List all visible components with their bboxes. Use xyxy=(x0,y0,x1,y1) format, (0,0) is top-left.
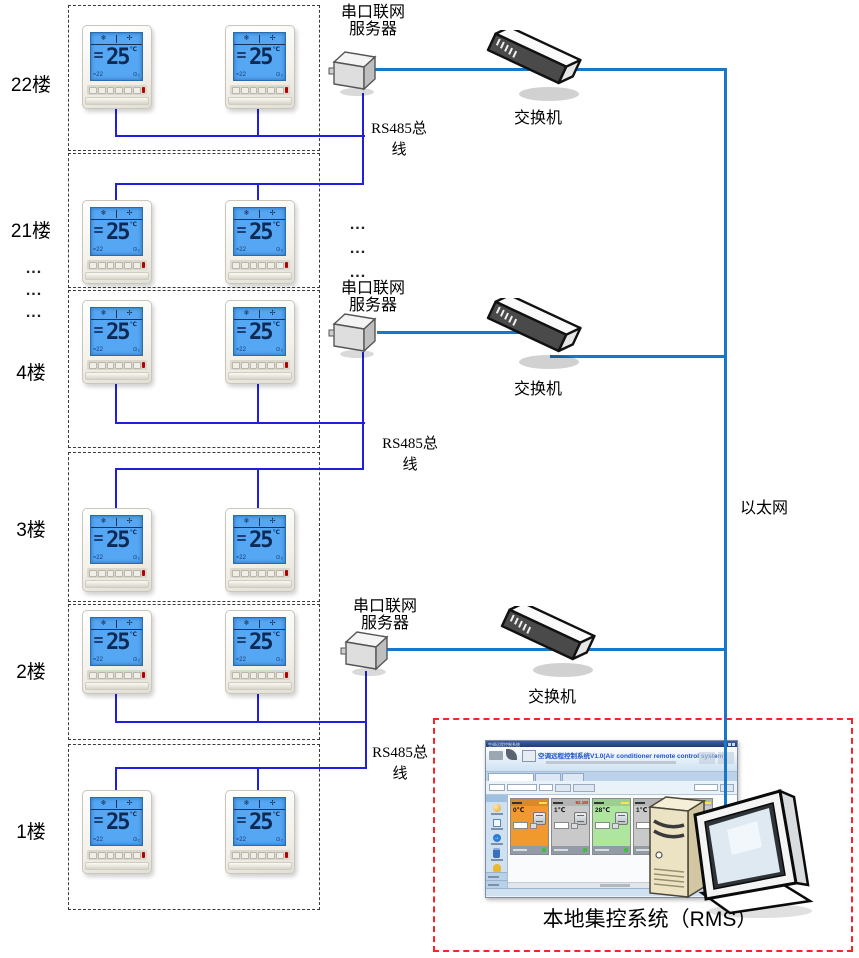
thermostat: ❄ ✢ 25 ℃ ≈22 ⊙₂ xyxy=(225,610,295,694)
thermostat-lcd: ❄ ✢ 25 ℃ ≈22 ⊙₂ xyxy=(90,32,143,81)
switch-label: 交换机 xyxy=(517,683,587,707)
rs485-bus-line xyxy=(115,382,117,422)
thermostat: ❄ ✢ 25 ℃ ≈22 ⊙₂ xyxy=(225,25,295,109)
rs485-bus-line xyxy=(365,671,367,769)
card-title-bar xyxy=(553,802,563,804)
arrow-icon: → xyxy=(493,834,501,842)
ac-unit-card: 0℃ xyxy=(510,798,549,855)
lcd-status-left: ≈22 xyxy=(93,657,103,664)
rs485-bus-line xyxy=(115,721,367,723)
lcd-status-left: ≈22 xyxy=(236,347,246,354)
lcd-status-left: ≈22 xyxy=(236,555,246,562)
network-switch-icon xyxy=(483,298,583,378)
thermostat-lcd: ❄ ✢ 25 ℃ ≈22 ⊙₂ xyxy=(90,515,143,564)
rs485-bus-line xyxy=(115,692,117,721)
snowflake-icon: ❄ xyxy=(91,799,116,809)
mode-indicator xyxy=(237,533,246,543)
lcd-status-right: ⊙₂ xyxy=(133,555,140,562)
thermostat-buttons xyxy=(87,260,147,270)
lcd-status-right: ⊙₂ xyxy=(133,247,140,254)
fan-icon: ✢ xyxy=(260,34,285,44)
snowflake-icon: ❄ xyxy=(91,34,116,44)
more-floors-dots: ... xyxy=(14,262,54,276)
user-icon xyxy=(493,864,501,872)
temperature-unit: ℃ xyxy=(273,529,280,536)
temperature-readout: 25 xyxy=(106,320,129,346)
fan-icon: ✢ xyxy=(260,619,285,629)
window-title-text: 空调远程控制系统 xyxy=(488,742,520,747)
lcd-status-right: ⊙₂ xyxy=(133,347,140,354)
thermostat-lcd: ❄ ✢ 25 ℃ ≈22 ⊙₂ xyxy=(90,207,143,256)
temperature-unit: ℃ xyxy=(130,321,137,328)
temperature-unit: ℃ xyxy=(130,631,137,638)
lcd-status-right: ⊙₂ xyxy=(133,837,140,844)
led-indicator xyxy=(142,570,145,576)
network-switch-icon xyxy=(483,30,583,110)
ac-unit-card: 28℃ xyxy=(592,798,631,855)
fan-icon: ✢ xyxy=(260,209,285,219)
thermostat-base xyxy=(85,372,149,380)
temperature-readout: 25 xyxy=(106,810,129,836)
app-tab xyxy=(488,773,534,781)
lcd-status-left: ≈22 xyxy=(93,72,103,79)
mode-indicator xyxy=(237,325,246,335)
mode-indicator xyxy=(237,225,246,235)
temperature-readout: 25 xyxy=(106,528,129,554)
floor-label-2: 2楼 xyxy=(2,657,60,684)
led-indicator xyxy=(285,852,288,858)
lcd-status-left: ≈22 xyxy=(93,555,103,562)
more-servers-dots: ... xyxy=(338,218,378,232)
snowflake-icon: ❄ xyxy=(91,619,116,629)
thermostat-base xyxy=(228,682,292,690)
thermostat-lcd: ❄ ✢ 25 ℃ ≈22 ⊙₂ xyxy=(90,307,143,356)
mode-indicator xyxy=(94,50,103,60)
app-title: 空调远程控制系统V1.0(Air conditioner remote cont… xyxy=(538,750,725,760)
thermostat: ❄ ✢ 25 ℃ ≈22 ⊙₂ xyxy=(82,300,152,384)
thermostat-base xyxy=(85,580,149,588)
lcd-status-left: ≈22 xyxy=(236,247,246,254)
mode-indicator xyxy=(94,533,103,543)
temperature-readout: 25 xyxy=(106,630,129,656)
thermostat-base xyxy=(228,272,292,280)
thermostat-base xyxy=(228,862,292,870)
mode-indicator xyxy=(237,635,246,645)
floor-label-21: 21楼 xyxy=(2,216,60,243)
card-temperature: 1℃ xyxy=(554,807,566,814)
more-floors-dots: ... xyxy=(14,306,54,320)
rs485-bus-label: RS485总线 xyxy=(369,743,431,785)
lcd-status-right: ⊙₂ xyxy=(276,555,283,562)
monitor-logo-icon xyxy=(489,751,503,760)
card-status-strip xyxy=(552,846,589,854)
led-indicator xyxy=(285,87,288,93)
thermostat-buttons xyxy=(87,568,147,578)
rs485-bus-line xyxy=(115,107,117,135)
thermostat-base xyxy=(228,372,292,380)
thermostat-buttons xyxy=(230,850,290,860)
temperature-unit: ℃ xyxy=(273,221,280,228)
serial-server-icon xyxy=(326,46,380,98)
thermostat-lcd: ❄ ✢ 25 ℃ ≈22 ⊙₂ xyxy=(233,32,286,81)
monitor-search-icon xyxy=(493,819,501,827)
ethernet-label: 以太网 xyxy=(740,494,788,518)
thermostat-lcd: ❄ ✢ 25 ℃ ≈22 ⊙₂ xyxy=(90,797,143,846)
thermostat-lcd: ❄ ✢ 25 ℃ ≈22 ⊙₂ xyxy=(233,207,286,256)
serial-server-label: 串口联网服务器 xyxy=(330,598,440,632)
ac-unit-card: 92.1M 1℃ xyxy=(551,798,590,855)
card-mini-button xyxy=(571,823,578,829)
lcd-status-right: ⊙₂ xyxy=(133,657,140,664)
lcd-status-right: ⊙₂ xyxy=(276,657,283,664)
switch-label: 交换机 xyxy=(503,104,573,128)
thermostat-buttons xyxy=(87,85,147,95)
thermostat: ❄ ✢ 25 ℃ ≈22 ⊙₂ xyxy=(82,508,152,592)
switch-label: 交换机 xyxy=(503,375,573,399)
temperature-unit: ℃ xyxy=(273,321,280,328)
snowflake-icon: ❄ xyxy=(234,34,259,44)
floor-label-22: 22楼 xyxy=(2,70,60,97)
thermostat-buttons xyxy=(230,670,290,680)
card-mini-button xyxy=(530,823,537,829)
temperature-unit: ℃ xyxy=(130,221,137,228)
fan-icon: ✢ xyxy=(117,517,142,527)
snowflake-icon: ❄ xyxy=(234,799,259,809)
card-temperature: 0℃ xyxy=(513,807,525,814)
header-decoration xyxy=(699,752,715,764)
card-mini-button xyxy=(612,823,619,829)
serial-server-label: 串口联网服务器 xyxy=(318,280,428,314)
lcd-status-left: ≈22 xyxy=(93,837,103,844)
lcd-status-left: ≈22 xyxy=(236,837,246,844)
network-switch-icon xyxy=(497,606,597,686)
fan-icon: ✢ xyxy=(260,517,285,527)
snowflake-icon: ❄ xyxy=(91,517,116,527)
lcd-status-left: ≈22 xyxy=(93,247,103,254)
temperature-unit: ℃ xyxy=(130,529,137,536)
temperature-unit: ℃ xyxy=(130,811,137,818)
thermostat: ❄ ✢ 25 ℃ ≈22 ⊙₂ xyxy=(225,508,295,592)
thermostat-lcd: ❄ ✢ 25 ℃ ≈22 ⊙₂ xyxy=(233,307,286,356)
rs485-bus-line xyxy=(362,352,364,470)
temperature-unit: ℃ xyxy=(130,46,137,53)
thermostat-lcd: ❄ ✢ 25 ℃ ≈22 ⊙₂ xyxy=(233,797,286,846)
lcd-status-right: ⊙₂ xyxy=(276,837,283,844)
thermostat-lcd: ❄ ✢ 25 ℃ ≈22 ⊙₂ xyxy=(90,617,143,666)
thermostat: ❄ ✢ 25 ℃ ≈22 ⊙₂ xyxy=(225,790,295,874)
snowflake-icon: ❄ xyxy=(234,309,259,319)
card-setpoint-box xyxy=(554,822,569,829)
card-title-bar xyxy=(512,802,522,804)
thermostat: ❄ ✢ 25 ℃ ≈22 ⊙₂ xyxy=(82,200,152,284)
rs485-bus-line xyxy=(115,422,365,424)
thermostat-base xyxy=(85,682,149,690)
floor-label-4: 4楼 xyxy=(2,358,60,385)
led-indicator xyxy=(142,362,145,368)
led-indicator xyxy=(285,362,288,368)
mode-indicator xyxy=(94,325,103,335)
fan-icon: ✢ xyxy=(117,209,142,219)
temperature-readout: 25 xyxy=(249,220,272,246)
fan-icon: ✢ xyxy=(260,309,285,319)
lcd-status-right: ⊙₂ xyxy=(276,247,283,254)
card-title-bar xyxy=(594,802,604,804)
thermostat-base xyxy=(85,862,149,870)
serial-server-icon xyxy=(338,626,392,678)
led-indicator xyxy=(285,262,288,268)
thermostat: ❄ ✢ 25 ℃ ≈22 ⊙₂ xyxy=(82,25,152,109)
lcd-status-right: ⊙₂ xyxy=(276,72,283,79)
card-temperature: 28℃ xyxy=(595,807,610,814)
card-status-strip xyxy=(593,846,630,854)
thermostat: ❄ ✢ 25 ℃ ≈22 ⊙₂ xyxy=(82,610,152,694)
rs485-bus-line xyxy=(257,107,259,135)
snowflake-icon: ❄ xyxy=(234,517,259,527)
led-indicator xyxy=(142,672,145,678)
more-servers-dots: ... xyxy=(338,266,378,280)
rs485-bus-line xyxy=(115,767,367,769)
thermostat-base xyxy=(85,97,149,105)
more-servers-dots: ... xyxy=(338,242,378,256)
lcd-status-left: ≈22 xyxy=(93,347,103,354)
thermostat: ❄ ✢ 25 ℃ ≈22 ⊙₂ xyxy=(82,790,152,874)
temperature-readout: 25 xyxy=(249,630,272,656)
thermostat-base xyxy=(228,97,292,105)
temperature-unit: ℃ xyxy=(273,46,280,53)
snowflake-icon: ❄ xyxy=(234,209,259,219)
serial-server-label: 串口联网服务器 xyxy=(318,4,428,38)
thermostat-buttons xyxy=(230,260,290,270)
app-subtitle-bar xyxy=(546,761,676,764)
app-tab xyxy=(535,773,561,781)
card-badge xyxy=(621,802,629,804)
temperature-readout: 25 xyxy=(106,45,129,71)
rs485-bus-line xyxy=(257,183,259,200)
led-indicator xyxy=(142,262,145,268)
thermostat-buttons xyxy=(230,360,290,370)
app-sidebar: → xyxy=(486,795,508,888)
lcd-status-right: ⊙₂ xyxy=(133,72,140,79)
rs485-bus-line xyxy=(115,468,364,470)
mode-indicator xyxy=(94,815,103,825)
card-setpoint-box xyxy=(595,822,610,829)
clock-icon xyxy=(493,804,501,812)
thermostat-buttons xyxy=(87,360,147,370)
rs485-bus-line xyxy=(257,692,259,721)
desktop-computer-icon xyxy=(632,775,822,920)
thermostat-buttons xyxy=(230,568,290,578)
lock-icon xyxy=(493,848,500,858)
rs485-bus-line xyxy=(115,468,117,508)
temperature-unit: ℃ xyxy=(273,811,280,818)
more-floors-dots: ... xyxy=(14,284,54,298)
led-indicator xyxy=(142,852,145,858)
mode-indicator xyxy=(94,635,103,645)
dish-logo-icon xyxy=(506,749,517,760)
fan-icon: ✢ xyxy=(117,619,142,629)
rs485-bus-line xyxy=(362,93,364,185)
snowflake-icon: ❄ xyxy=(91,309,116,319)
online-status-dot xyxy=(624,848,628,852)
rs485-bus-label: RS485总线 xyxy=(368,119,430,161)
mode-indicator xyxy=(237,815,246,825)
online-status-dot xyxy=(583,848,587,852)
flag-logo-icon xyxy=(522,750,536,762)
network-topology-diagram: 22楼 21楼 4楼 3楼 2楼 1楼 ... ... ... ... ... … xyxy=(0,0,859,958)
fan-icon: ✢ xyxy=(117,309,142,319)
online-status-dot xyxy=(542,848,546,852)
card-badge xyxy=(539,802,547,804)
lcd-status-right: ⊙₂ xyxy=(276,347,283,354)
rs485-bus-line xyxy=(115,767,117,790)
rs485-bus-line xyxy=(257,382,259,422)
thermostat-base xyxy=(228,580,292,588)
mode-indicator xyxy=(94,225,103,235)
lcd-status-left: ≈22 xyxy=(236,657,246,664)
thermostat-lcd: ❄ ✢ 25 ℃ ≈22 ⊙₂ xyxy=(233,515,286,564)
rs485-bus-line xyxy=(257,468,259,508)
mode-indicator xyxy=(237,50,246,60)
temperature-readout: 25 xyxy=(249,810,272,836)
thermostat-buttons xyxy=(87,850,147,860)
app-header: 空调远程控制系统V1.0(Air conditioner remote cont… xyxy=(486,747,737,772)
rs485-bus-line xyxy=(257,767,259,790)
card-status-strip xyxy=(511,846,548,854)
app-tab xyxy=(562,773,584,781)
led-indicator xyxy=(285,672,288,678)
thermostat-buttons xyxy=(87,670,147,680)
temperature-unit: ℃ xyxy=(273,631,280,638)
temperature-readout: 25 xyxy=(106,220,129,246)
card-badge: 92.1M xyxy=(575,800,588,806)
thermostat-lcd: ❄ ✢ 25 ℃ ≈22 ⊙₂ xyxy=(233,617,286,666)
rs485-bus-label: RS485总线 xyxy=(379,434,441,476)
temperature-readout: 25 xyxy=(249,45,272,71)
floor-label-3: 3楼 xyxy=(2,515,60,542)
fan-icon: ✢ xyxy=(260,799,285,809)
ethernet-backbone-line xyxy=(724,68,727,810)
led-indicator xyxy=(142,87,145,93)
fan-icon: ✢ xyxy=(117,799,142,809)
rs485-bus-line xyxy=(115,183,117,200)
led-indicator xyxy=(285,570,288,576)
thermostat: ❄ ✢ 25 ℃ ≈22 ⊙₂ xyxy=(225,300,295,384)
snowflake-icon: ❄ xyxy=(234,619,259,629)
card-setpoint-box xyxy=(513,822,528,829)
rs485-bus-line xyxy=(115,135,365,137)
snowflake-icon: ❄ xyxy=(91,209,116,219)
thermostat-base xyxy=(85,272,149,280)
thermostat-buttons xyxy=(230,85,290,95)
lcd-status-left: ≈22 xyxy=(236,72,246,79)
temperature-readout: 25 xyxy=(249,320,272,346)
temperature-readout: 25 xyxy=(249,528,272,554)
fan-icon: ✢ xyxy=(117,34,142,44)
thermostat: ❄ ✢ 25 ℃ ≈22 ⊙₂ xyxy=(225,200,295,284)
serial-server-icon xyxy=(326,308,380,360)
rs485-bus-line xyxy=(115,183,364,185)
floor-label-1: 1楼 xyxy=(2,817,60,844)
